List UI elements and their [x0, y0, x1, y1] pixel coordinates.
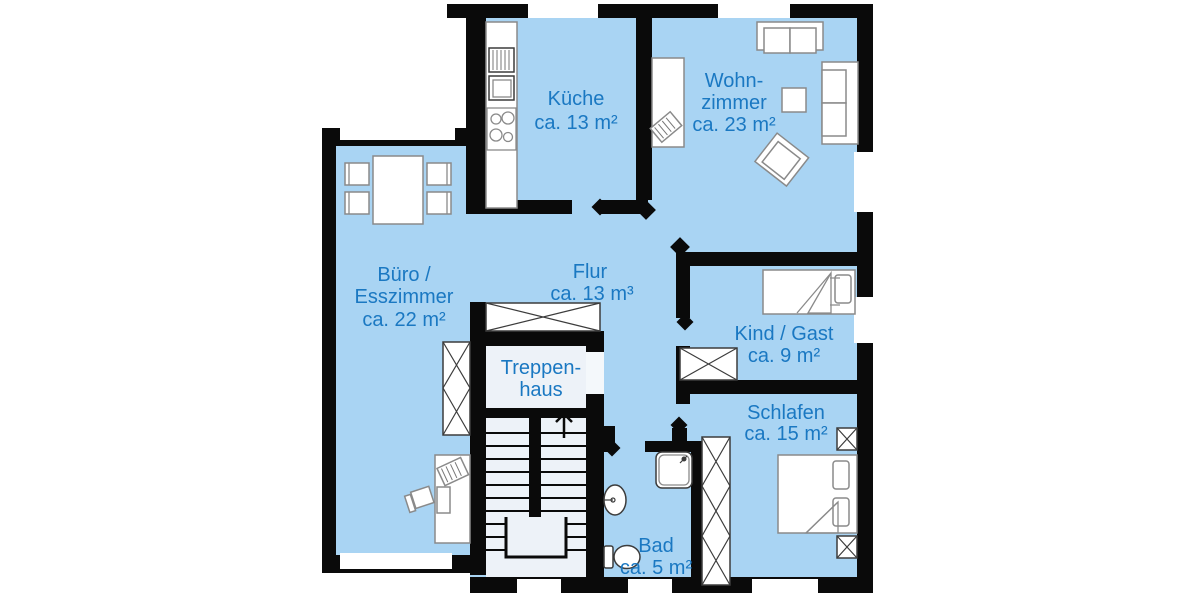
- label-buero-line2: Esszimmer: [355, 286, 454, 308]
- shower: [656, 452, 692, 488]
- wall-bad-right: [691, 441, 703, 577]
- nightstand: [837, 536, 857, 558]
- label-kind-name: Kind / Gast: [735, 323, 834, 345]
- label-kueche-area: ca. 13 m²: [534, 112, 618, 134]
- label-treppenhaus-line2: haus: [519, 379, 562, 401]
- label-bad-name: Bad: [638, 535, 674, 557]
- buero-wardrobe: [443, 342, 470, 435]
- kind-wardrobe: [680, 348, 737, 380]
- label-treppenhaus-line1: Treppen-: [501, 357, 581, 379]
- window-schlafen-bottom: [752, 579, 818, 596]
- wall-treppenhaus-top: [470, 331, 604, 346]
- side-table: [782, 88, 806, 112]
- floor-plan: Küche ca. 13 m² Wohn- zimmer ca. 23 m² B…: [0, 0, 1200, 600]
- dining-table: [373, 156, 423, 224]
- window-bad-bottom: [628, 579, 672, 596]
- wall-treppenhaus-right-a: [586, 331, 604, 352]
- label-kueche-name: Küche: [548, 88, 605, 110]
- window-wohnzimmer-top: [718, 1, 790, 18]
- label-wohnzimmer-area: ca. 23 m²: [692, 114, 776, 136]
- window-buero-bottom: [340, 553, 452, 569]
- schlafen-wardrobe: [702, 437, 730, 585]
- nightstand: [837, 428, 857, 450]
- sofa-right: [822, 62, 858, 144]
- desk-tray: [437, 487, 450, 513]
- label-bad-area: ca. 5 m²: [620, 557, 693, 579]
- label-schlafen-area: ca. 15 m²: [744, 423, 828, 445]
- wall-kueche-bottom-a: [466, 200, 572, 214]
- wall-kueche-wohnzimmer: [636, 4, 652, 200]
- sink: [604, 485, 626, 515]
- wall-kind-schlafen: [676, 380, 857, 394]
- wall-buero-left: [322, 128, 336, 573]
- label-buero-line1: Büro /: [377, 264, 431, 286]
- window-stairs-bottom: [517, 579, 561, 596]
- window-kind-right: [854, 297, 873, 343]
- wall-kind-left-a: [676, 252, 690, 318]
- kitchen-counter: [486, 22, 517, 208]
- wohnzimmer-desk: [650, 58, 684, 147]
- window-buero-top: [340, 124, 455, 140]
- wall-top: [447, 4, 872, 18]
- label-flur-name: Flur: [573, 261, 608, 283]
- pillow: [833, 498, 849, 526]
- label-schlafen-name: Schlafen: [747, 402, 825, 424]
- wall-kueche-left: [466, 4, 486, 214]
- label-wohnzimmer-line2: zimmer: [701, 92, 767, 114]
- floor-plan-svg: Küche ca. 13 m² Wohn- zimmer ca. 23 m² B…: [0, 0, 1200, 600]
- stairwell-door-gap: [586, 352, 604, 394]
- pillow: [835, 275, 851, 303]
- label-buero-area: ca. 22 m²: [362, 309, 446, 331]
- wall-bad-top: [645, 441, 691, 452]
- flur-wardrobe: [486, 303, 600, 331]
- oven-icon: [489, 48, 514, 72]
- kind-bed: [763, 270, 855, 314]
- pillow: [833, 461, 849, 489]
- window-kueche-top: [528, 1, 598, 18]
- wall-wohnzimmer-bottom: [676, 252, 857, 266]
- double-bed: [778, 455, 857, 533]
- wall-treppenhaus-right-b: [586, 394, 604, 577]
- label-wohnzimmer-line1: Wohn-: [705, 70, 764, 92]
- label-flur-area: ca. 13 m³: [550, 283, 634, 305]
- label-kind-area: ca. 9 m²: [748, 345, 821, 367]
- window-wohnzimmer-right: [854, 152, 873, 212]
- stair-divider: [529, 415, 541, 517]
- sofa-top: [757, 22, 823, 53]
- appliance-icon: [489, 76, 514, 100]
